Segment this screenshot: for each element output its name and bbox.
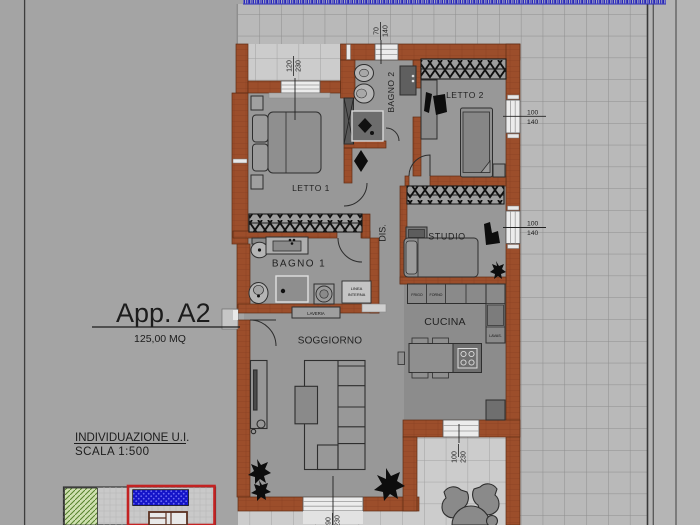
svg-text:100: 100 xyxy=(527,221,539,228)
svg-text:100: 100 xyxy=(527,110,539,117)
svg-text:100: 100 xyxy=(452,451,459,463)
svg-text:140: 140 xyxy=(527,230,539,237)
svg-text:STUDIO: STUDIO xyxy=(428,232,466,242)
svg-text:230: 230 xyxy=(335,515,342,525)
svg-text:BAGNO 1: BAGNO 1 xyxy=(272,259,326,270)
svg-text:LETTO 2: LETTO 2 xyxy=(446,90,484,100)
svg-text:LAVERIA: LAVERIA xyxy=(307,311,325,316)
svg-text:120: 120 xyxy=(287,60,294,72)
svg-text:LETTO 1: LETTO 1 xyxy=(292,183,330,193)
svg-text:BAGNO 2: BAGNO 2 xyxy=(386,71,396,112)
svg-text:125,00 MQ: 125,00 MQ xyxy=(134,333,186,345)
svg-text:140: 140 xyxy=(383,25,390,37)
svg-text:230: 230 xyxy=(296,60,303,72)
svg-text:140: 140 xyxy=(527,119,539,126)
svg-text:230: 230 xyxy=(461,451,468,463)
svg-text:DIS.: DIS. xyxy=(378,224,388,242)
svg-text:LINEA: LINEA xyxy=(351,286,363,291)
svg-text:FRIGO: FRIGO xyxy=(411,293,423,297)
svg-text:LAVAS.: LAVAS. xyxy=(489,334,502,338)
svg-text:FORNO: FORNO xyxy=(430,293,443,297)
svg-text:70: 70 xyxy=(374,27,381,35)
svg-text:90: 90 xyxy=(326,517,333,525)
svg-text:SCALA 1:500: SCALA 1:500 xyxy=(75,446,150,458)
svg-text:INTERNA: INTERNA xyxy=(348,292,366,297)
svg-text:CUCINA: CUCINA xyxy=(424,316,465,328)
svg-text:App. A2: App. A2 xyxy=(116,298,211,328)
svg-text:SOGGIORNO: SOGGIORNO xyxy=(298,336,363,347)
svg-text:INDIVIDUAZIONE U.I.: INDIVIDUAZIONE U.I. xyxy=(75,432,189,444)
